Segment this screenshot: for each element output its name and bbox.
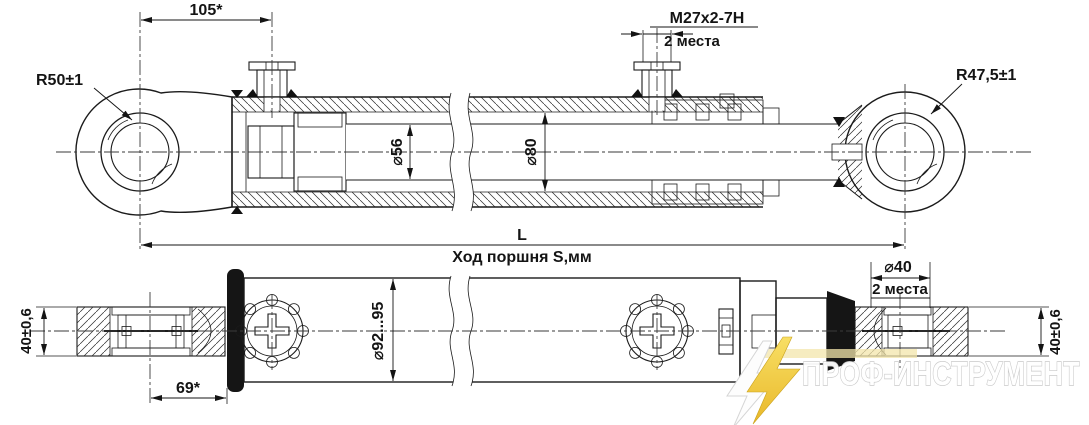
dim-body-diameter: ⌀92...95 (370, 279, 393, 381)
dim-right-eye-width: 40±0,6 (969, 307, 1064, 356)
bleed-plug (719, 309, 733, 354)
top-section-view (76, 62, 965, 215)
left-eye-width-label: 40±0,6 (18, 308, 35, 354)
cylinder-body-bottom (244, 278, 740, 382)
dim-69-label: 69* (176, 380, 201, 397)
hydraulic-cylinder-drawing: ПРОФ-ИНСТРУМЕНТ 105* M27x2-7H 2 места R5… (0, 0, 1089, 425)
dim-pin-bore: ⌀40 2 места (871, 259, 930, 308)
body-diameter-label: ⌀92...95 (370, 302, 387, 361)
thread-spec-label: M27x2-7H (670, 10, 745, 27)
dim-left-eye-radius: R50±1 (36, 72, 132, 120)
dim-105-label: 105* (190, 2, 224, 19)
right-eye-width-label: 40±0,6 (1047, 309, 1064, 355)
dim-thread-spec: M27x2-7H 2 места (621, 10, 758, 62)
dim-eye-to-body: 69* (151, 380, 227, 404)
left-eye-radius-label: R50±1 (36, 72, 83, 89)
length-label: L (517, 227, 527, 244)
brand-name: ПРОФ-ИНСТРУМЕНТ (802, 355, 1080, 392)
stroke-label: Ход поршня S,мм (452, 249, 591, 266)
dim-left-eye-width: 40±0,6 (18, 307, 76, 356)
pin-bore-label: ⌀40 (884, 259, 912, 276)
dim-eye-to-port: 105* (141, 2, 271, 20)
right-eye-bottom (855, 307, 968, 356)
bore-diameter-label: ⌀80 (523, 138, 540, 166)
right-eye-radius-label: R47,5±1 (956, 67, 1016, 84)
left-eye-bottom (77, 307, 225, 356)
thread-places-label: 2 места (664, 33, 720, 50)
pin-bore-places-label: 2 места (872, 281, 928, 298)
rod-diameter-label: ⌀56 (389, 138, 406, 166)
brand-watermark: ПРОФ-ИНСТРУМЕНТ (727, 337, 1080, 425)
dim-overall-length: L Ход поршня S,мм (141, 227, 904, 266)
